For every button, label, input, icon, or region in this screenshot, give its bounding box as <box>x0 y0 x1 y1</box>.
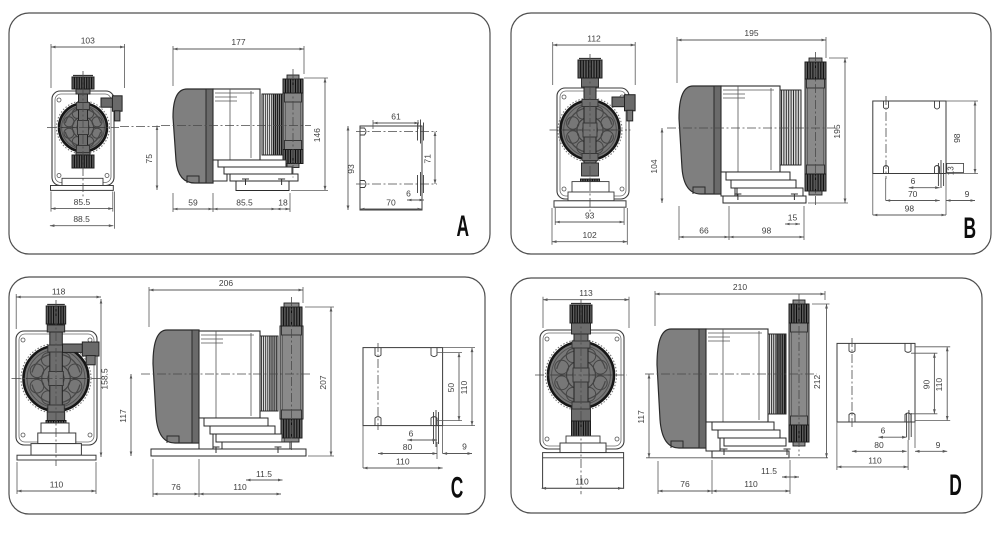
svg-text:59: 59 <box>188 198 198 208</box>
svg-text:71: 71 <box>423 154 433 164</box>
svg-text:158.5: 158.5 <box>100 368 110 390</box>
svg-text:110: 110 <box>575 477 589 487</box>
svg-text:98: 98 <box>762 226 772 236</box>
svg-text:102: 102 <box>583 230 597 240</box>
svg-text:76: 76 <box>171 482 181 492</box>
svg-text:B: B <box>964 212 977 245</box>
svg-text:50: 50 <box>446 383 456 393</box>
svg-text:110: 110 <box>459 381 469 395</box>
svg-text:117: 117 <box>636 410 646 424</box>
svg-text:110: 110 <box>396 457 410 467</box>
svg-text:117: 117 <box>118 409 128 423</box>
svg-text:70: 70 <box>908 189 918 199</box>
svg-text:206: 206 <box>219 278 233 288</box>
svg-text:195: 195 <box>832 124 842 138</box>
svg-text:93: 93 <box>585 211 595 221</box>
svg-text:110: 110 <box>934 378 944 392</box>
svg-text:177: 177 <box>231 37 245 47</box>
svg-text:6: 6 <box>409 429 414 439</box>
svg-text:103: 103 <box>81 36 95 46</box>
svg-text:80: 80 <box>874 440 884 450</box>
svg-text:11.5: 11.5 <box>761 466 777 476</box>
svg-text:9: 9 <box>965 189 970 199</box>
svg-text:11.5: 11.5 <box>256 469 272 479</box>
svg-text:146: 146 <box>312 128 322 142</box>
svg-text:66: 66 <box>699 226 709 236</box>
svg-text:A: A <box>457 210 470 243</box>
svg-text:6: 6 <box>881 426 886 436</box>
svg-text:195: 195 <box>744 28 758 38</box>
svg-text:75: 75 <box>144 154 154 164</box>
svg-text:D: D <box>949 469 962 502</box>
svg-text:110: 110 <box>868 455 882 465</box>
svg-text:76: 76 <box>680 479 690 489</box>
svg-text:93: 93 <box>346 164 356 174</box>
svg-text:9: 9 <box>936 440 941 450</box>
svg-text:70: 70 <box>386 198 396 208</box>
svg-text:85.5: 85.5 <box>236 198 253 208</box>
svg-text:98: 98 <box>952 133 962 143</box>
svg-text:110: 110 <box>233 482 247 492</box>
svg-text:6: 6 <box>406 189 411 199</box>
svg-text:98: 98 <box>905 204 915 214</box>
svg-text:85.5: 85.5 <box>74 197 91 207</box>
svg-text:6: 6 <box>911 176 916 186</box>
svg-text:113: 113 <box>579 288 593 298</box>
svg-text:210: 210 <box>733 282 747 292</box>
svg-text:80: 80 <box>403 442 413 452</box>
svg-text:104: 104 <box>649 159 659 173</box>
svg-text:90: 90 <box>921 380 931 390</box>
svg-text:110: 110 <box>744 479 758 489</box>
svg-text:207: 207 <box>318 375 328 389</box>
svg-text:9: 9 <box>462 442 467 452</box>
svg-text:112: 112 <box>587 34 601 44</box>
svg-text:13: 13 <box>947 166 956 175</box>
svg-text:118: 118 <box>52 287 66 297</box>
svg-text:61: 61 <box>391 112 401 122</box>
svg-text:C: C <box>451 472 464 505</box>
svg-text:15: 15 <box>788 213 798 223</box>
svg-text:18: 18 <box>278 198 288 208</box>
svg-text:110: 110 <box>50 480 64 490</box>
svg-text:212: 212 <box>812 375 822 389</box>
svg-text:88.5: 88.5 <box>73 214 90 224</box>
